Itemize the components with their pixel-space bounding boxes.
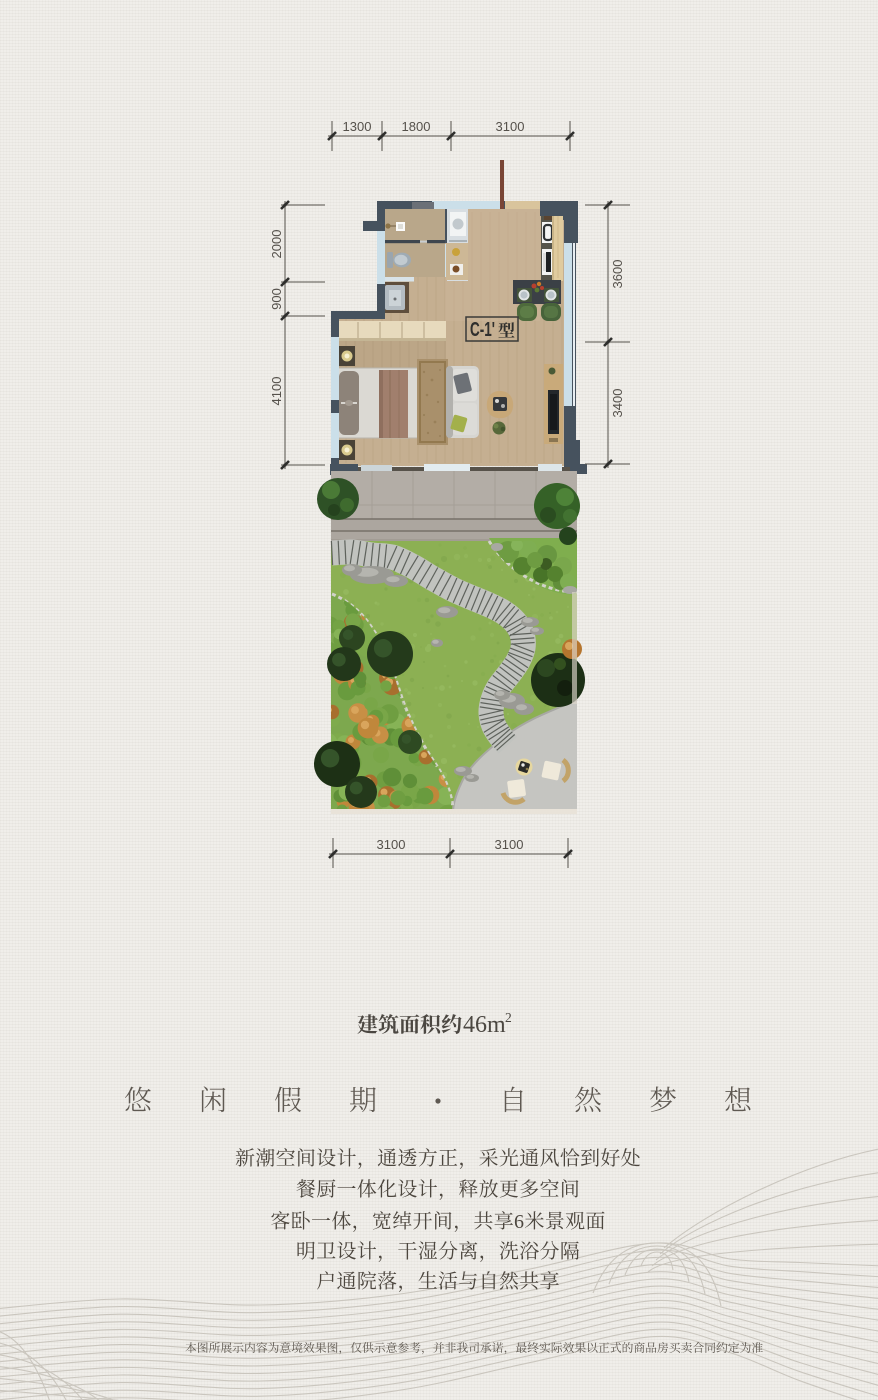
svg-text:3100: 3100: [496, 119, 525, 134]
svg-text:2: 2: [505, 1010, 512, 1025]
svg-text:3100: 3100: [377, 837, 406, 852]
svg-text:3400: 3400: [610, 389, 625, 418]
svg-text:3100: 3100: [495, 837, 524, 852]
svg-text:C-1': C-1': [470, 319, 495, 341]
svg-text:900: 900: [269, 288, 284, 310]
svg-text:2000: 2000: [269, 230, 284, 259]
svg-text:4100: 4100: [269, 377, 284, 406]
svg-text:3600: 3600: [610, 260, 625, 289]
svg-text:6: 6: [514, 1211, 524, 1233]
svg-text:1300: 1300: [343, 119, 372, 134]
svg-text:1800: 1800: [402, 119, 431, 134]
svg-text:46m: 46m: [463, 1012, 506, 1038]
